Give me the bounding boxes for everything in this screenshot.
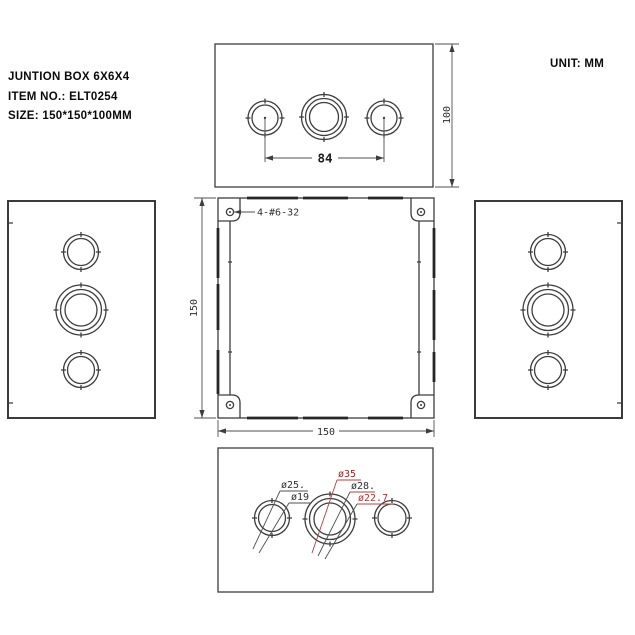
dim-width-text: 150: [317, 427, 335, 438]
inner-walls: [230, 221, 419, 395]
knockout-small: [61, 350, 101, 390]
front-view-outline: [218, 198, 434, 418]
drawing-sheet: JUNTION BOX 6X6X4 ITEM NO.: ELT0254 SIZE…: [0, 0, 635, 635]
leader-d19: [259, 503, 311, 553]
left-side-view: [8, 201, 155, 418]
knockout-small: [61, 232, 101, 272]
label-d22-7: ø22.7: [358, 493, 388, 504]
dim-depth-text: 100: [442, 106, 453, 124]
screw-note-text: 4-#6-32: [257, 208, 299, 219]
dim-height-text: 150: [189, 299, 200, 317]
label-d25: ø25.: [281, 480, 305, 491]
dimension-150-height: 150: [189, 198, 216, 418]
knockout-small: [528, 350, 568, 390]
corner-tabs: [218, 198, 434, 418]
drawing-canvas: 84 100: [0, 0, 635, 635]
label-d35: ø35: [338, 469, 356, 480]
label-d19: ø19: [291, 492, 309, 503]
knockout-large: [299, 92, 349, 142]
label-d28: ø28.: [351, 481, 375, 492]
diameter-callouts: ø25. ø19 ø35 ø28. ø22.7: [253, 469, 394, 559]
dim-spacing-text: 84: [317, 151, 332, 166]
screw-note: 4-#6-32: [234, 208, 299, 219]
knockout-small: [528, 232, 568, 272]
knockout-large: [54, 283, 109, 338]
right-side-view: [475, 201, 622, 418]
dimension-100: 100: [435, 44, 459, 187]
knockout-tabs: [299, 92, 349, 142]
dimension-150-width: 150: [218, 420, 434, 438]
front-view: 4-#6-32 150 150: [189, 198, 434, 438]
top-view: 84 100: [215, 44, 459, 187]
inner-wall-ticks: [228, 262, 421, 352]
bottom-view-outline: [218, 448, 433, 592]
knockout-large: [521, 283, 576, 338]
bottom-view: ø25. ø19 ø35 ø28. ø22.7: [218, 448, 433, 592]
